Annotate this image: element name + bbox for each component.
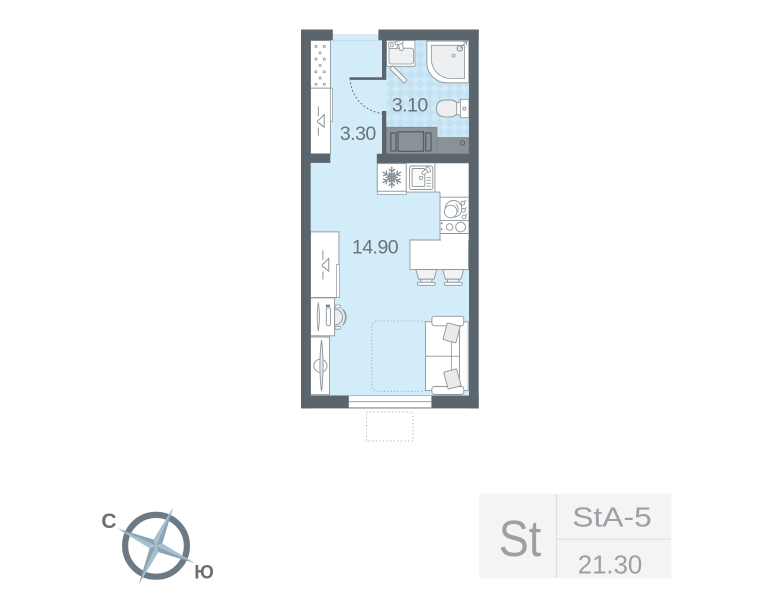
- svg-text:21.30: 21.30: [578, 550, 643, 580]
- svg-text:С: С: [101, 510, 116, 533]
- svg-text:14.90: 14.90: [352, 236, 399, 258]
- svg-text:StA-5: StA-5: [572, 502, 652, 533]
- svg-text:3.30: 3.30: [340, 123, 377, 145]
- svg-text:St: St: [499, 510, 542, 567]
- svg-text:3.10: 3.10: [392, 95, 429, 117]
- svg-text:Ю: Ю: [194, 563, 214, 584]
